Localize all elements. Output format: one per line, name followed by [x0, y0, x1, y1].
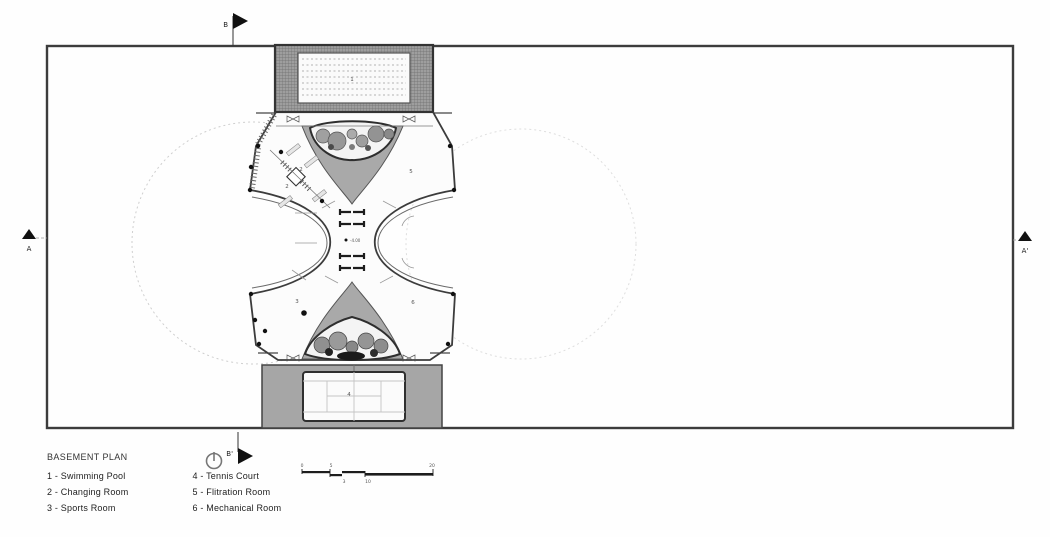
section-marker-a: A	[22, 229, 47, 253]
section-marker-b: B	[223, 13, 248, 46]
building-body: -4.00	[248, 112, 456, 361]
scale-tick-20: 20	[429, 463, 435, 469]
scale-tick-0: 0	[301, 463, 304, 469]
basement-plan-drawing: A A' B B'	[0, 0, 1050, 537]
room-label-changing-a: 2	[299, 167, 303, 173]
room-label-changing-b: 2	[285, 184, 289, 190]
legend: BASEMENT PLAN 1 - Swimming Pool 2 - Chan…	[47, 452, 281, 514]
section-label-a: A	[27, 245, 32, 253]
room-label-sports: 3	[295, 299, 299, 305]
level-label: -4.00	[350, 238, 361, 243]
section-label-a-prime: A'	[1022, 247, 1029, 255]
legend-item-changing-room: 2 - Changing Room	[47, 487, 128, 498]
legend-item-filtration-room: 5 - Flitration Room	[192, 487, 281, 498]
section-marker-a-prime: A'	[1013, 231, 1032, 255]
room-label-filtration: 5	[409, 169, 413, 175]
section-flag-b-icon	[233, 13, 248, 29]
legend-item-sports-room: 3 - Sports Room	[47, 503, 128, 514]
scale-tick-10: 10	[365, 479, 371, 485]
scale-tick-5: 5	[330, 463, 333, 469]
scale-tick-3: 3	[343, 479, 346, 485]
section-arrow-a-icon	[22, 229, 36, 239]
section-label-b: B	[223, 21, 228, 29]
legend-item-swimming-pool: 1 - Swimming Pool	[47, 471, 128, 482]
tennis-court-block	[258, 353, 450, 428]
site-boundary	[47, 46, 1013, 428]
room-label-mechanical: 6	[411, 300, 415, 306]
plan-title: BASEMENT PLAN	[47, 452, 281, 462]
section-arrow-a-prime-icon	[1018, 231, 1032, 241]
legend-item-tennis-court: 4 - Tennis Court	[192, 471, 281, 482]
legend-item-mechanical-room: 6 - Mechanical Room	[192, 503, 281, 514]
scale-bar: 0 5 3 10 20	[301, 463, 435, 485]
room-label-tennis: 4	[347, 392, 351, 398]
legend-column-1: 1 - Swimming Pool 2 - Changing Room 3 - …	[47, 471, 128, 514]
legend-column-2: 4 - Tennis Court 5 - Flitration Room 6 -…	[192, 471, 281, 514]
room-label-pool: 1	[350, 77, 354, 83]
swimming-pool	[298, 53, 410, 103]
